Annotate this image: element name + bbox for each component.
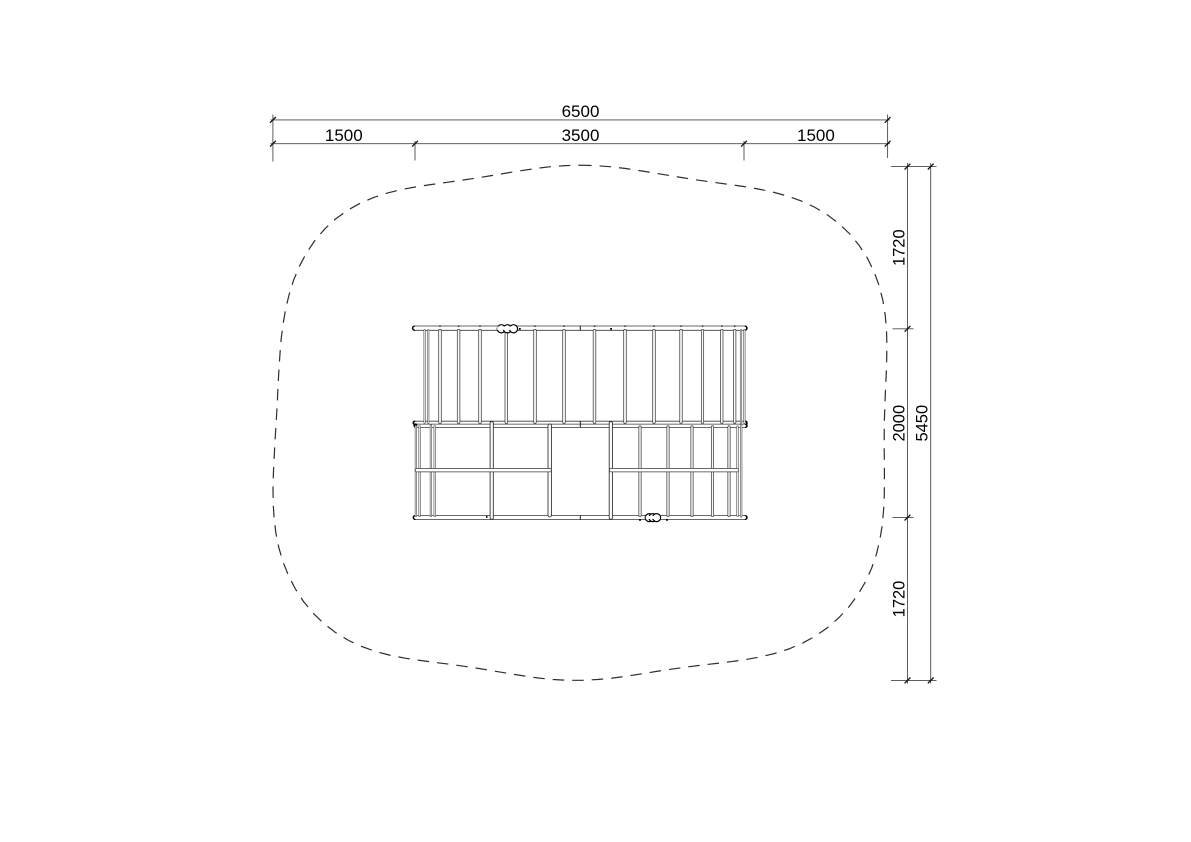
svg-text:2000: 2000 bbox=[890, 405, 908, 442]
svg-text:6500: 6500 bbox=[562, 102, 600, 121]
svg-text:5450: 5450 bbox=[914, 405, 932, 442]
svg-text:1720: 1720 bbox=[890, 581, 908, 618]
svg-text:1500: 1500 bbox=[325, 126, 363, 145]
svg-text:1500: 1500 bbox=[797, 126, 835, 145]
svg-text:1720: 1720 bbox=[890, 229, 908, 266]
svg-text:3500: 3500 bbox=[562, 126, 600, 145]
